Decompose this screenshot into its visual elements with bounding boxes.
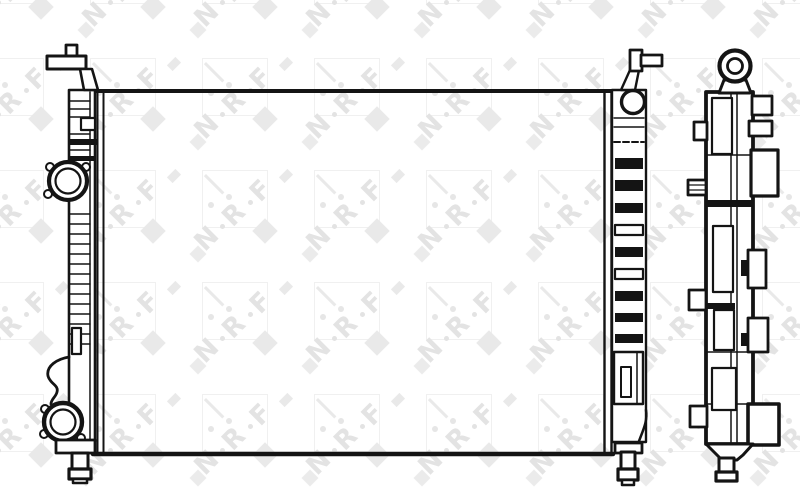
lower-bracket-curve: [48, 357, 69, 404]
upper-hose-port: [44, 162, 90, 200]
right-mounting-bracket: [621, 50, 662, 90]
lower-hose-port: [40, 403, 85, 442]
side-bottom-pin: [706, 444, 753, 481]
catalog-product-image: NRFNRFNRFNRFNRFNRFNRFNRFNRFNRFNRFNRFNRFN…: [0, 0, 800, 502]
front-view-drawing: [40, 45, 662, 485]
filler-neck: [622, 91, 645, 114]
side-top-mounting-pin: [719, 51, 751, 94]
left-drain-plug: [56, 440, 95, 483]
radiator-core: [93, 91, 613, 454]
side-view-drawing: [688, 51, 779, 482]
top-mounting-bracket: [47, 45, 98, 90]
left-tank: [40, 45, 98, 483]
radiator-technical-drawing: [0, 0, 800, 502]
right-tank-ribs: [615, 158, 643, 343]
right-tank: [612, 50, 662, 485]
